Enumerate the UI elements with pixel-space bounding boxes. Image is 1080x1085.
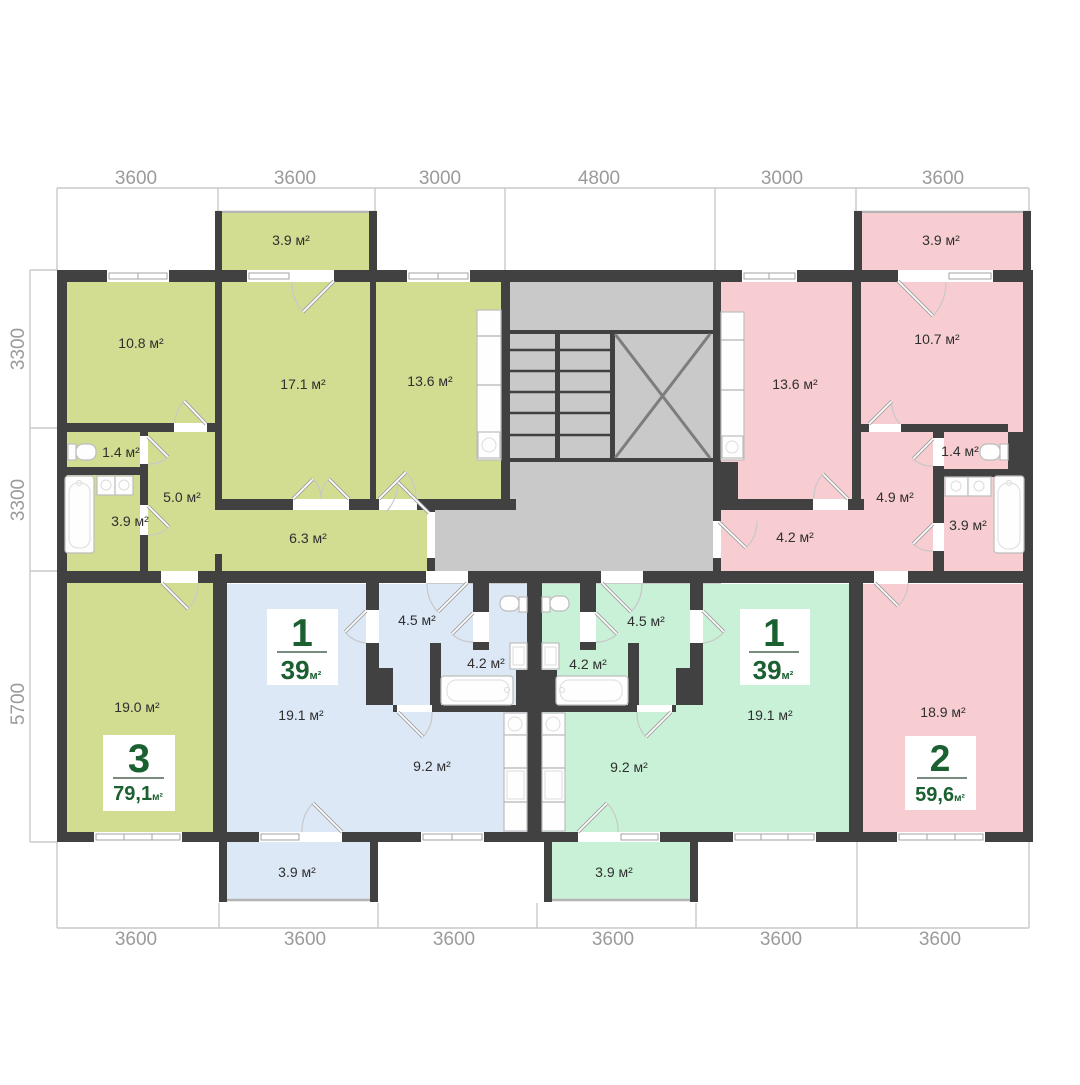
svg-text:6.3 м²: 6.3 м² — [289, 530, 327, 546]
svg-text:10.8 м²: 10.8 м² — [118, 335, 164, 351]
svg-text:3600: 3600 — [592, 929, 634, 950]
svg-text:1.4 м²: 1.4 м² — [941, 443, 979, 459]
svg-text:5700: 5700 — [8, 683, 29, 725]
svg-text:4.9 м²: 4.9 м² — [876, 489, 914, 505]
svg-text:3600: 3600 — [919, 929, 961, 950]
svg-text:3.9 м²: 3.9 м² — [272, 232, 310, 248]
svg-text:3.9 м²: 3.9 м² — [595, 864, 633, 880]
svg-text:4.2 м²: 4.2 м² — [569, 656, 607, 672]
svg-text:10.7 м²: 10.7 м² — [914, 331, 960, 347]
svg-text:2: 2 — [930, 738, 951, 779]
svg-text:3600: 3600 — [115, 168, 157, 189]
svg-text:4.2 м²: 4.2 м² — [776, 529, 814, 545]
svg-text:17.1 м²: 17.1 м² — [280, 376, 326, 392]
svg-text:19.0 м²: 19.0 м² — [114, 699, 160, 715]
svg-text:1: 1 — [763, 612, 785, 655]
svg-text:13.6 м²: 13.6 м² — [407, 373, 453, 389]
svg-text:13.6 м²: 13.6 м² — [772, 376, 818, 392]
svg-text:3600: 3600 — [274, 168, 316, 189]
svg-text:3.9 м²: 3.9 м² — [922, 232, 960, 248]
svg-text:3.9 м²: 3.9 м² — [949, 517, 987, 533]
svg-text:3600: 3600 — [115, 929, 157, 950]
svg-text:3600: 3600 — [284, 929, 326, 950]
svg-text:4.5 м²: 4.5 м² — [627, 613, 665, 629]
svg-text:3300: 3300 — [8, 328, 29, 370]
svg-text:4.5 м²: 4.5 м² — [398, 612, 436, 628]
svg-text:9.2 м²: 9.2 м² — [413, 758, 451, 774]
svg-text:3300: 3300 — [8, 479, 29, 521]
svg-text:5.0 м²: 5.0 м² — [163, 489, 201, 505]
svg-text:3600: 3600 — [922, 168, 964, 189]
svg-text:19.1 м²: 19.1 м² — [278, 707, 324, 723]
svg-text:9.2 м²: 9.2 м² — [610, 759, 648, 775]
svg-text:18.9 м²: 18.9 м² — [920, 704, 966, 720]
svg-text:4800: 4800 — [578, 168, 620, 189]
svg-text:3600: 3600 — [760, 929, 802, 950]
svg-text:3: 3 — [128, 737, 150, 781]
svg-text:3600: 3600 — [433, 929, 475, 950]
svg-text:3.9 м²: 3.9 м² — [111, 513, 149, 529]
svg-text:3000: 3000 — [761, 168, 803, 189]
svg-text:3000: 3000 — [419, 168, 461, 189]
svg-text:4.2 м²: 4.2 м² — [467, 655, 505, 671]
svg-text:1.4 м²: 1.4 м² — [102, 444, 140, 460]
svg-text:1: 1 — [291, 612, 313, 655]
svg-text:3.9 м²: 3.9 м² — [278, 864, 316, 880]
svg-text:19.1 м²: 19.1 м² — [747, 707, 793, 723]
